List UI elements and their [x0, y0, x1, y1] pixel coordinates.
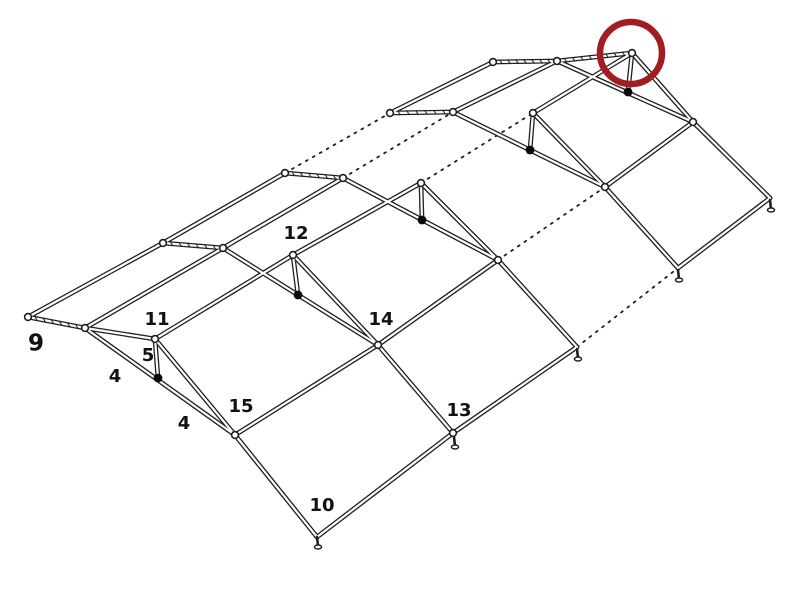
connector-dot [294, 291, 303, 300]
joint-fitting [152, 336, 159, 343]
part-label-15-5: 15 [228, 396, 253, 417]
joint-fitting [25, 314, 32, 321]
part-label-11-1: 11 [144, 309, 169, 330]
joint-fitting [387, 110, 394, 117]
joint-fitting [629, 50, 636, 57]
connector-dot [154, 374, 163, 383]
joint-fitting [495, 257, 502, 264]
connector-dot [526, 146, 535, 155]
part-label-10-9: 10 [309, 495, 334, 516]
joint-fitting [450, 430, 457, 437]
joint-fitting [220, 245, 227, 252]
joint-fitting [282, 170, 289, 177]
joint-fitting [602, 184, 609, 191]
tent-frame-diagram: 9115441512141310 [0, 0, 800, 600]
joint-fitting [554, 58, 561, 65]
connector-dot [624, 88, 633, 97]
joint-fitting [232, 432, 239, 439]
connector-dot [418, 216, 427, 225]
joint-fitting [530, 110, 537, 117]
part-label-5-2: 5 [142, 345, 155, 366]
part-label-9-0: 9 [28, 331, 44, 357]
part-label-12-6: 12 [283, 223, 308, 244]
joint-fitting [490, 59, 497, 66]
joint-fitting [340, 175, 347, 182]
pipe-core-brace-st3 [421, 183, 422, 220]
joint-fitting [82, 325, 89, 332]
part-label-4-4: 4 [178, 413, 191, 434]
part-label-4-3: 4 [109, 366, 122, 387]
foot-pad [574, 357, 581, 361]
part-label-14-7: 14 [368, 309, 393, 330]
joint-fitting [418, 180, 425, 187]
diagram-canvas: 9115441512141310 [0, 0, 800, 600]
foot-pad [451, 445, 458, 449]
joint-fitting [290, 252, 297, 259]
part-label-13-8: 13 [446, 400, 471, 421]
foot-pad [767, 208, 774, 212]
joint-fitting [375, 342, 382, 349]
foot-pad [314, 545, 321, 549]
joint-fitting [450, 109, 457, 116]
joint-fitting [160, 240, 167, 247]
diagram-background [0, 0, 800, 600]
foot-pad [675, 278, 682, 282]
joint-fitting [690, 119, 697, 126]
